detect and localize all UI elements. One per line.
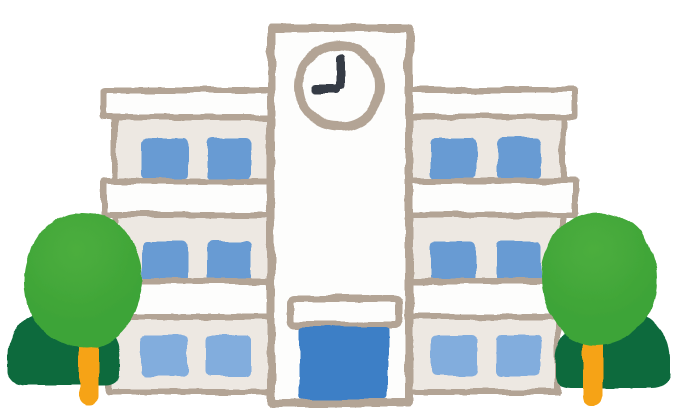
- window: [207, 138, 251, 179]
- window: [206, 335, 251, 376]
- window: [140, 335, 187, 376]
- tree-canopy-left: [24, 212, 142, 348]
- clock-hour-hand: [311, 85, 341, 94]
- window: [142, 138, 188, 179]
- window: [496, 335, 541, 376]
- left-wing-floor3-wall: [111, 114, 278, 184]
- right-wing-floor3-wall: [403, 114, 566, 184]
- tree-canopy-right: [541, 212, 657, 345]
- left-wing-floor1-wall: [106, 314, 278, 395]
- window: [497, 138, 541, 179]
- window: [430, 138, 476, 179]
- window: [142, 241, 188, 282]
- entrance-door: [300, 326, 388, 399]
- window: [497, 241, 541, 282]
- illustration-stage: [0, 0, 681, 410]
- window: [430, 241, 476, 282]
- entrance-sign: [287, 295, 403, 328]
- window: [431, 335, 477, 376]
- window: [207, 241, 251, 282]
- school-illustration: [0, 0, 681, 410]
